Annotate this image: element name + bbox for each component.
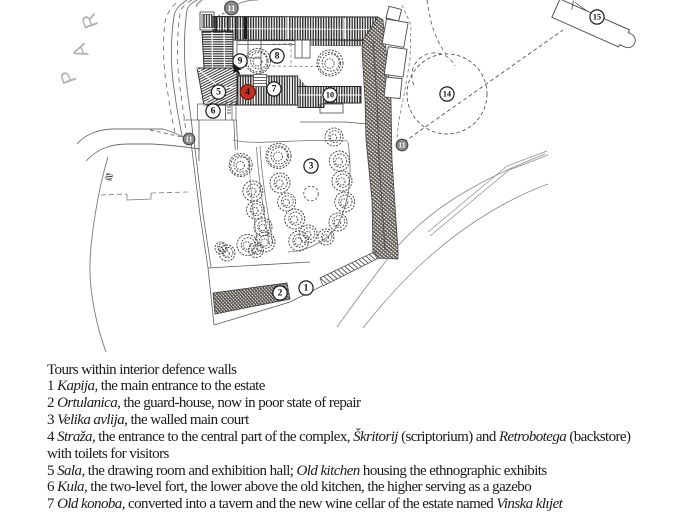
svg-text:7: 7 (272, 84, 277, 95)
svg-text:6: 6 (211, 106, 216, 117)
svg-text:A: A (68, 40, 93, 61)
svg-text:14: 14 (443, 90, 451, 99)
svg-text:15: 15 (593, 13, 601, 22)
svg-text:1: 1 (304, 283, 309, 294)
svg-text:2: 2 (278, 288, 283, 299)
svg-text:9: 9 (238, 56, 243, 67)
svg-text:R: R (78, 10, 104, 31)
svg-text:11: 11 (398, 141, 405, 150)
svg-text:11: 11 (227, 3, 235, 13)
svg-text:4: 4 (245, 87, 250, 98)
svg-text:3: 3 (309, 161, 314, 172)
svg-text:8: 8 (275, 51, 280, 62)
svg-text:10: 10 (326, 91, 334, 100)
svg-text:11: 11 (185, 135, 192, 144)
svg-text:P: P (56, 67, 81, 87)
svg-text:5: 5 (216, 87, 221, 98)
